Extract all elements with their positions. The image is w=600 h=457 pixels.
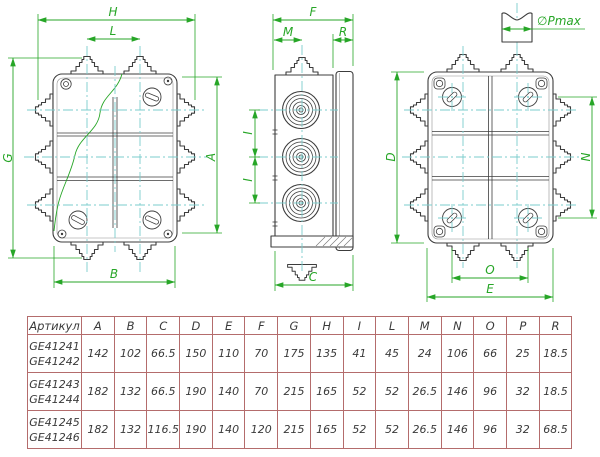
article-cell: GE41241 GE41242 — [28, 335, 82, 373]
back-view: D N O E — [384, 46, 597, 302]
table-cell: 52 — [376, 411, 409, 449]
table-header: F — [245, 317, 278, 335]
dim-label-e: E — [486, 282, 494, 296]
table-header: E — [212, 317, 245, 335]
table-header: A — [82, 317, 115, 335]
table-header: C — [147, 317, 180, 335]
table-row: GE41243 GE41244 182 132 66.5 190 140 70 … — [28, 373, 572, 411]
table-cell: 135 — [310, 335, 343, 373]
table-cell: 96 — [474, 373, 507, 411]
table-cell: 150 — [180, 335, 213, 373]
table-header: B — [114, 317, 147, 335]
table-cell: 140 — [212, 373, 245, 411]
dim-label-pmax: ∅Pmax — [537, 14, 582, 28]
table-cell: 70 — [245, 373, 278, 411]
article-number: GE41245 — [28, 415, 81, 430]
article-number: GE41241 — [28, 339, 81, 354]
article-cell: GE41245 GE41246 — [28, 411, 82, 449]
table-cell: 52 — [343, 411, 376, 449]
table-cell: 182 — [82, 411, 115, 449]
dim-label-o: O — [485, 263, 494, 277]
dim-label-m: M — [283, 25, 294, 39]
table-header: M — [408, 317, 441, 335]
table-cell: 140 — [212, 411, 245, 449]
table-cell: 132 — [114, 411, 147, 449]
article-cell: GE41243 GE41244 — [28, 373, 82, 411]
screw-icon — [69, 211, 87, 229]
table-header: L — [376, 317, 409, 335]
gland-detail: ∅Pmax — [502, 3, 585, 52]
table-header-article: Артикул — [28, 317, 82, 335]
dim-label-n: N — [579, 152, 593, 161]
dim-label-f: F — [310, 5, 318, 19]
dim-label-i: I — [241, 131, 255, 135]
dim-label-i: I — [241, 178, 255, 182]
front-view: H L G A B — [1, 5, 222, 288]
table-cell: 190 — [180, 373, 213, 411]
table-cell: 24 — [408, 335, 441, 373]
table-cell: 215 — [278, 411, 311, 449]
table-header-row: Артикул A B C D E F G H I L M N O P R — [28, 317, 572, 335]
table-cell: 26.5 — [408, 373, 441, 411]
dim-label-d: D — [384, 152, 398, 161]
table-cell: 182 — [82, 373, 115, 411]
table-header: D — [180, 317, 213, 335]
table-cell: 146 — [441, 411, 474, 449]
table-cell: 26.5 — [408, 411, 441, 449]
table-cell: 18.5 — [539, 373, 572, 411]
table-cell: 175 — [278, 335, 311, 373]
table-header: H — [310, 317, 343, 335]
table-cell: 41 — [343, 335, 376, 373]
table-cell: 96 — [474, 411, 507, 449]
table-cell: 25 — [506, 335, 539, 373]
dim-label-g: G — [1, 153, 15, 162]
dim-label-c: C — [309, 270, 318, 284]
technical-drawing: H L G A B — [0, 0, 600, 312]
table-cell: 116.5 — [147, 411, 180, 449]
table-cell: 142 — [82, 335, 115, 373]
table-header: R — [539, 317, 572, 335]
dim-label-l: L — [110, 24, 117, 38]
dim-label-a: A — [204, 153, 218, 162]
table-cell: 52 — [376, 373, 409, 411]
table-cell: 106 — [441, 335, 474, 373]
table-cell: 66.5 — [147, 335, 180, 373]
dim-label-h: H — [108, 5, 117, 19]
table-cell: 32 — [506, 411, 539, 449]
table-row: GE41241 GE41242 142 102 66.5 150 110 70 … — [28, 335, 572, 373]
table-cell: 52 — [343, 373, 376, 411]
article-number: GE41243 — [28, 377, 81, 392]
screw-icon — [143, 211, 161, 229]
table-cell: 70 — [245, 335, 278, 373]
table-header: O — [474, 317, 507, 335]
table-cell: 32 — [506, 373, 539, 411]
article-number: GE41246 — [28, 430, 81, 445]
table-cell: 165 — [310, 373, 343, 411]
article-number: GE41244 — [28, 392, 81, 407]
dimensions-table: Артикул A B C D E F G H I L M N O P R — [27, 316, 572, 449]
table-header: G — [278, 317, 311, 335]
table-cell: 132 — [114, 373, 147, 411]
table-cell: 102 — [114, 335, 147, 373]
table-cell: 215 — [278, 373, 311, 411]
screw-icon — [143, 88, 161, 106]
table-cell: 165 — [310, 411, 343, 449]
dim-label-r: R — [339, 25, 347, 39]
table-cell: 190 — [180, 411, 213, 449]
dim-label-b: B — [110, 267, 118, 281]
table-header: N — [441, 317, 474, 335]
table-cell: 66.5 — [147, 373, 180, 411]
table-cell: 68.5 — [539, 411, 572, 449]
table-container: Артикул A B C D E F G H I L M N O P R — [27, 316, 572, 449]
table-cell: 120 — [245, 411, 278, 449]
table-cell: 110 — [212, 335, 245, 373]
table-header: I — [343, 317, 376, 335]
article-number: GE41242 — [28, 354, 81, 369]
table-cell: 18.5 — [539, 335, 572, 373]
junction-box-datasheet: H L G A B — [0, 0, 600, 457]
table-cell: 146 — [441, 373, 474, 411]
table-header: P — [506, 317, 539, 335]
table-cell: 66 — [474, 335, 507, 373]
side-view: F M R I I C — [241, 5, 353, 291]
table-cell: 45 — [376, 335, 409, 373]
table-row: GE41245 GE41246 182 132 116.5 190 140 12… — [28, 411, 572, 449]
